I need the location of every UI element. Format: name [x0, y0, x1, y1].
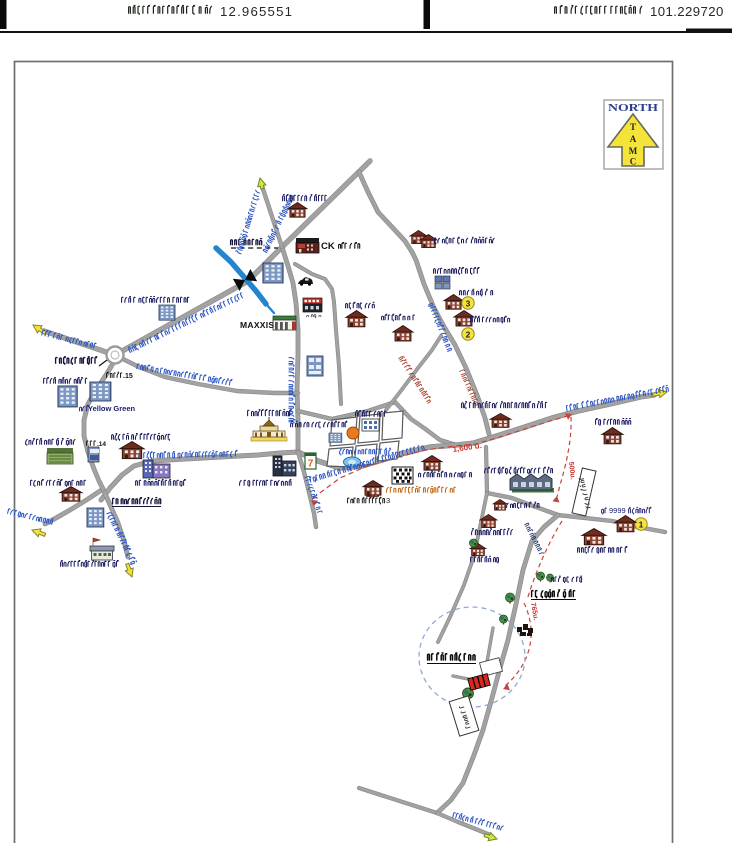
svg-text:7: 7 [308, 459, 314, 470]
svg-text:1: 1 [639, 519, 644, 529]
svg-text:.15: .15 [123, 373, 133, 380]
svg-text:Yellow Green: Yellow Green [88, 404, 136, 413]
svg-text:3: 3 [386, 496, 390, 505]
svg-text:9999: 9999 [609, 506, 626, 515]
svg-text:CK: CK [321, 241, 335, 252]
svg-text:T: T [630, 122, 636, 132]
svg-text:3: 3 [466, 298, 471, 308]
svg-text:12.965551: 12.965551 [220, 4, 293, 19]
svg-text:C: C [630, 157, 637, 167]
svg-text:.14: .14 [97, 441, 106, 448]
svg-text:MAXXIS: MAXXIS [240, 320, 274, 330]
svg-text:M: M [629, 146, 638, 156]
svg-text:101.229720: 101.229720 [650, 4, 724, 19]
svg-text:NORTH: NORTH [608, 102, 659, 114]
svg-text:2: 2 [466, 329, 471, 339]
svg-text:A: A [630, 134, 637, 144]
